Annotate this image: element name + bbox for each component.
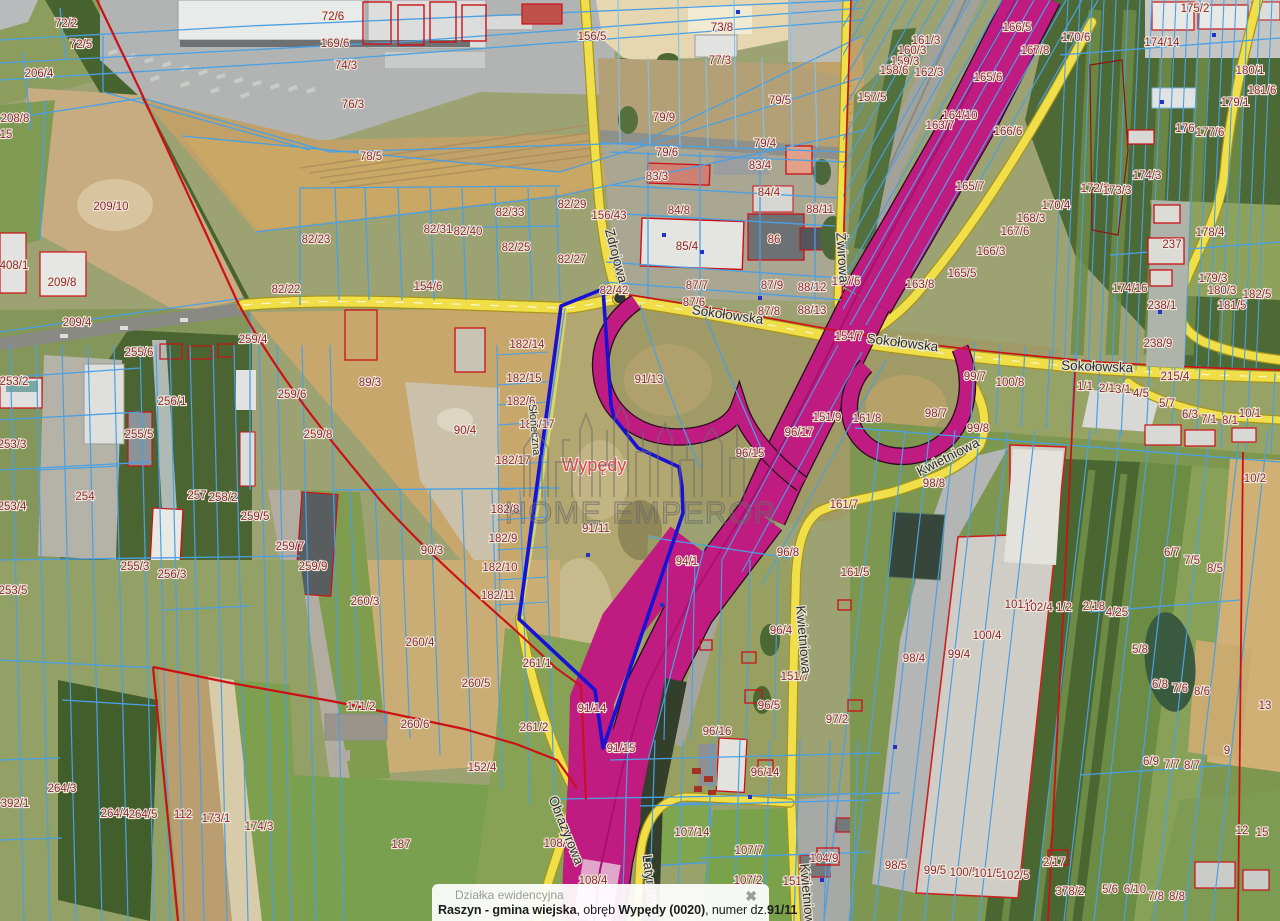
svg-text:156/5: 156/5 (578, 31, 607, 43)
svg-text:88/12: 88/12 (798, 282, 827, 294)
svg-text:237: 237 (1162, 239, 1181, 251)
svg-text:163/7: 163/7 (926, 120, 955, 132)
svg-text:180/3: 180/3 (1208, 285, 1237, 297)
svg-text:178/4: 178/4 (1196, 227, 1225, 239)
svg-text:74/3: 74/3 (335, 60, 357, 72)
svg-text:77/3: 77/3 (709, 55, 731, 67)
svg-text:174/3: 174/3 (245, 821, 274, 833)
svg-text:85/4: 85/4 (676, 241, 699, 253)
svg-text:257: 257 (187, 490, 206, 502)
svg-text:3/1: 3/1 (1115, 384, 1131, 396)
svg-text:107/14: 107/14 (674, 827, 710, 839)
svg-text:182/10: 182/10 (482, 562, 517, 574)
svg-text:152/4: 152/4 (468, 762, 497, 774)
svg-text:165/6: 165/6 (974, 72, 1003, 84)
svg-text:256/1: 256/1 (158, 396, 187, 408)
svg-text:96/16: 96/16 (703, 726, 732, 738)
svg-text:82/33: 82/33 (496, 207, 525, 219)
svg-text:8/8: 8/8 (1169, 891, 1185, 903)
svg-text:6/9: 6/9 (1143, 756, 1159, 768)
svg-text:6/10: 6/10 (1124, 884, 1146, 896)
svg-text:99/4: 99/4 (948, 649, 971, 661)
svg-text:94/1: 94/1 (676, 556, 698, 568)
svg-text:98/7: 98/7 (925, 408, 947, 420)
svg-text:264/4: 264/4 (101, 808, 130, 820)
svg-text:5/8: 5/8 (1132, 644, 1148, 656)
svg-text:79/5: 79/5 (769, 95, 791, 107)
svg-text:209/4: 209/4 (63, 317, 92, 329)
svg-text:161/7: 161/7 (830, 499, 859, 511)
svg-text:206/4: 206/4 (25, 68, 54, 80)
svg-text:HOME EMPEROR: HOME EMPEROR (505, 496, 777, 530)
svg-text:79/9: 79/9 (653, 112, 675, 124)
svg-text:76/3: 76/3 (342, 99, 364, 111)
svg-text:170/6: 170/6 (1062, 32, 1091, 44)
svg-text:259/6: 259/6 (278, 389, 307, 401)
svg-text:4/5: 4/5 (1133, 388, 1149, 400)
svg-text:259/8: 259/8 (304, 429, 333, 441)
svg-text:82/31: 82/31 (424, 224, 453, 236)
svg-text:260/6: 260/6 (401, 719, 430, 731)
svg-text:408/1: 408/1 (0, 260, 28, 272)
svg-text:261/2: 261/2 (520, 722, 549, 734)
svg-text:175/2: 175/2 (1181, 3, 1210, 15)
svg-text:255/5: 255/5 (125, 429, 154, 441)
svg-text:72/5: 72/5 (70, 39, 92, 51)
svg-text:392/1: 392/1 (1, 798, 30, 810)
svg-text:5/6: 5/6 (1102, 884, 1118, 896)
svg-text:253/4: 253/4 (0, 501, 27, 513)
svg-text:174/14: 174/14 (1144, 37, 1180, 49)
svg-text:165/5: 165/5 (948, 268, 977, 280)
svg-text:7/1: 7/1 (1201, 414, 1217, 426)
svg-text:255/3: 255/3 (121, 561, 150, 573)
svg-text:107/7: 107/7 (735, 845, 764, 857)
svg-text:238/1: 238/1 (1148, 300, 1177, 312)
svg-text:9: 9 (1224, 745, 1230, 757)
svg-text:98/5: 98/5 (885, 860, 907, 872)
svg-text:157/5: 157/5 (858, 92, 887, 104)
svg-text:171/2: 171/2 (347, 701, 376, 713)
svg-text:102/4 1/2: 102/4 1/2 (1024, 602, 1072, 614)
svg-text:12: 12 (1236, 825, 1249, 837)
svg-text:182/5: 182/5 (1243, 289, 1272, 301)
svg-text:99/8: 99/8 (967, 423, 989, 435)
svg-text:82/29: 82/29 (558, 199, 587, 211)
svg-text:101/5: 101/5 (974, 868, 1003, 880)
svg-text:187: 187 (391, 839, 410, 851)
svg-text:96/8: 96/8 (777, 547, 799, 559)
svg-text:264/5: 264/5 (129, 809, 158, 821)
svg-text:100/4: 100/4 (973, 630, 1002, 642)
svg-text:163/8: 163/8 (906, 279, 935, 291)
svg-text:100/8: 100/8 (996, 377, 1025, 389)
svg-text:260/5: 260/5 (462, 678, 491, 690)
svg-text:170/4: 170/4 (1042, 200, 1071, 212)
svg-text:253/5: 253/5 (0, 585, 27, 597)
svg-text:112: 112 (174, 809, 192, 821)
svg-text:259/5: 259/5 (241, 511, 270, 523)
svg-text:176: 176 (1175, 123, 1194, 135)
svg-text:15: 15 (1256, 827, 1269, 839)
svg-text:8/1: 8/1 (1222, 415, 1238, 427)
svg-text:165/7: 165/7 (956, 181, 985, 193)
svg-text:104/9: 104/9 (810, 853, 839, 865)
svg-text:166/6: 166/6 (994, 126, 1023, 138)
svg-text:158/6: 158/6 (880, 65, 909, 77)
svg-text:2/1: 2/1 (1099, 383, 1115, 395)
svg-text:5/7: 5/7 (1159, 398, 1175, 410)
svg-text:174/16: 174/16 (1112, 283, 1147, 295)
svg-text:173/3: 173/3 (1103, 185, 1132, 197)
svg-text:181/5: 181/5 (1218, 300, 1247, 312)
svg-text:253/2: 253/2 (0, 376, 28, 388)
svg-text:264/3: 264/3 (48, 783, 77, 795)
svg-text:6/8: 6/8 (1152, 679, 1168, 691)
svg-text:259/4: 259/4 (239, 334, 268, 346)
svg-text:181/6: 181/6 (1248, 85, 1277, 97)
svg-text:215/4: 215/4 (1161, 371, 1190, 383)
svg-text:1/1: 1/1 (1077, 381, 1093, 393)
svg-text:10/1: 10/1 (1239, 408, 1261, 420)
svg-text:8/5: 8/5 (1207, 563, 1223, 575)
svg-text:8/7: 8/7 (1184, 760, 1200, 772)
svg-text:177/6: 177/6 (1196, 127, 1225, 139)
svg-text:167/8: 167/8 (1021, 45, 1050, 57)
svg-text:208/8: 208/8 (1, 113, 30, 125)
svg-text:102/5: 102/5 (1001, 870, 1030, 882)
svg-text:209/10: 209/10 (93, 201, 128, 213)
svg-text:13: 13 (1259, 700, 1272, 712)
svg-text:82/22: 82/22 (272, 284, 301, 296)
svg-text:83/3: 83/3 (646, 171, 668, 183)
svg-text:2/18: 2/18 (1083, 601, 1105, 613)
svg-text:209/8: 209/8 (48, 277, 77, 289)
svg-text:182/14: 182/14 (509, 339, 545, 351)
svg-text:261/1: 261/1 (523, 658, 552, 670)
svg-text:258/2: 258/2 (209, 492, 238, 504)
svg-text:166/3: 166/3 (977, 246, 1006, 258)
svg-text:238/9: 238/9 (1144, 338, 1173, 350)
svg-text:82/40: 82/40 (454, 226, 483, 238)
svg-text:182/9: 182/9 (489, 533, 518, 545)
svg-text:173/1: 173/1 (202, 813, 231, 825)
svg-text:97/2: 97/2 (826, 714, 848, 726)
svg-text:256/3: 256/3 (158, 569, 187, 581)
svg-text:182/15: 182/15 (506, 373, 541, 385)
svg-text:182/17: 182/17 (495, 455, 530, 467)
svg-text:87/9: 87/9 (761, 280, 783, 292)
svg-text:182/11: 182/11 (481, 590, 515, 602)
svg-text:167/6: 167/6 (1001, 226, 1030, 238)
svg-text:84/8: 84/8 (668, 205, 690, 217)
svg-text:7/6: 7/6 (1172, 683, 1188, 695)
svg-text:7/5: 7/5 (1184, 555, 1200, 567)
svg-text:259/9: 259/9 (299, 561, 328, 573)
svg-text:96/14: 96/14 (751, 767, 780, 779)
svg-text:82/27: 82/27 (558, 254, 587, 266)
svg-text:99/5: 99/5 (924, 865, 946, 877)
svg-text:72/2: 72/2 (55, 18, 77, 30)
svg-text:73/8: 73/8 (711, 22, 733, 34)
svg-text:98/4: 98/4 (903, 653, 926, 665)
svg-text:174/3: 174/3 (1133, 170, 1162, 182)
svg-text:96/17: 96/17 (785, 427, 814, 439)
svg-text:91/15: 91/15 (607, 743, 636, 755)
svg-text:82/23: 82/23 (302, 234, 331, 246)
svg-text:6/7: 6/7 (1164, 547, 1180, 559)
svg-text:98/8: 98/8 (923, 478, 945, 490)
svg-text:260/4: 260/4 (406, 637, 435, 649)
svg-text:6/3: 6/3 (1182, 409, 1198, 421)
svg-text:86: 86 (768, 234, 781, 246)
svg-text:91/14: 91/14 (578, 703, 607, 715)
svg-text:254: 254 (75, 491, 95, 503)
svg-text:7/7: 7/7 (1164, 759, 1180, 771)
svg-text:2/17: 2/17 (1043, 857, 1065, 869)
svg-text:179/3: 179/3 (1199, 273, 1228, 285)
svg-text:15: 15 (0, 129, 12, 141)
svg-text:154/7: 154/7 (835, 331, 864, 343)
svg-text:169/6: 169/6 (321, 38, 350, 50)
svg-text:87/7: 87/7 (686, 280, 708, 292)
svg-text:88/13: 88/13 (798, 305, 827, 317)
svg-text:259/7: 259/7 (276, 541, 305, 553)
svg-text:168/3: 168/3 (1017, 213, 1046, 225)
svg-text:99/7: 99/7 (964, 371, 986, 383)
svg-text:10/2: 10/2 (1244, 473, 1266, 485)
svg-text:90/3: 90/3 (421, 545, 443, 557)
svg-text:156/43: 156/43 (591, 210, 626, 222)
svg-text:96/4: 96/4 (770, 625, 793, 637)
svg-text:83/4: 83/4 (749, 160, 772, 172)
svg-text:90/4: 90/4 (454, 425, 477, 437)
svg-text:79/4: 79/4 (754, 138, 777, 150)
svg-text:96/5: 96/5 (758, 700, 780, 712)
svg-text:91/13: 91/13 (635, 374, 664, 386)
svg-text:179/1: 179/1 (1221, 97, 1250, 109)
svg-text:88/11: 88/11 (806, 204, 834, 216)
svg-text:260/3: 260/3 (351, 596, 380, 608)
svg-text:162/3: 162/3 (915, 67, 944, 79)
svg-text:7/8: 7/8 (1148, 891, 1164, 903)
svg-text:161/8: 161/8 (853, 413, 882, 425)
svg-text:8/6: 8/6 (1194, 686, 1210, 698)
svg-text:180/1: 180/1 (1236, 65, 1265, 77)
svg-text:378/2: 378/2 (1056, 886, 1085, 898)
svg-text:82/25: 82/25 (502, 242, 531, 254)
svg-text:154/6: 154/6 (414, 281, 443, 293)
svg-text:Sokołowska: Sokołowska (1061, 358, 1134, 376)
svg-text:78/5: 78/5 (360, 151, 382, 163)
svg-text:151/9: 151/9 (813, 412, 842, 424)
svg-text:79/6: 79/6 (656, 147, 678, 159)
svg-text:89/3: 89/3 (359, 377, 381, 389)
svg-text:4/25: 4/25 (1106, 607, 1128, 619)
svg-text:161/5: 161/5 (841, 567, 870, 579)
svg-text:84/4: 84/4 (758, 187, 781, 199)
svg-text:72/6: 72/6 (322, 11, 344, 23)
svg-text:166/5: 166/5 (1003, 22, 1032, 34)
svg-text:82/42: 82/42 (600, 285, 629, 297)
svg-text:255/6: 255/6 (125, 347, 154, 359)
svg-text:253/3: 253/3 (0, 439, 26, 451)
